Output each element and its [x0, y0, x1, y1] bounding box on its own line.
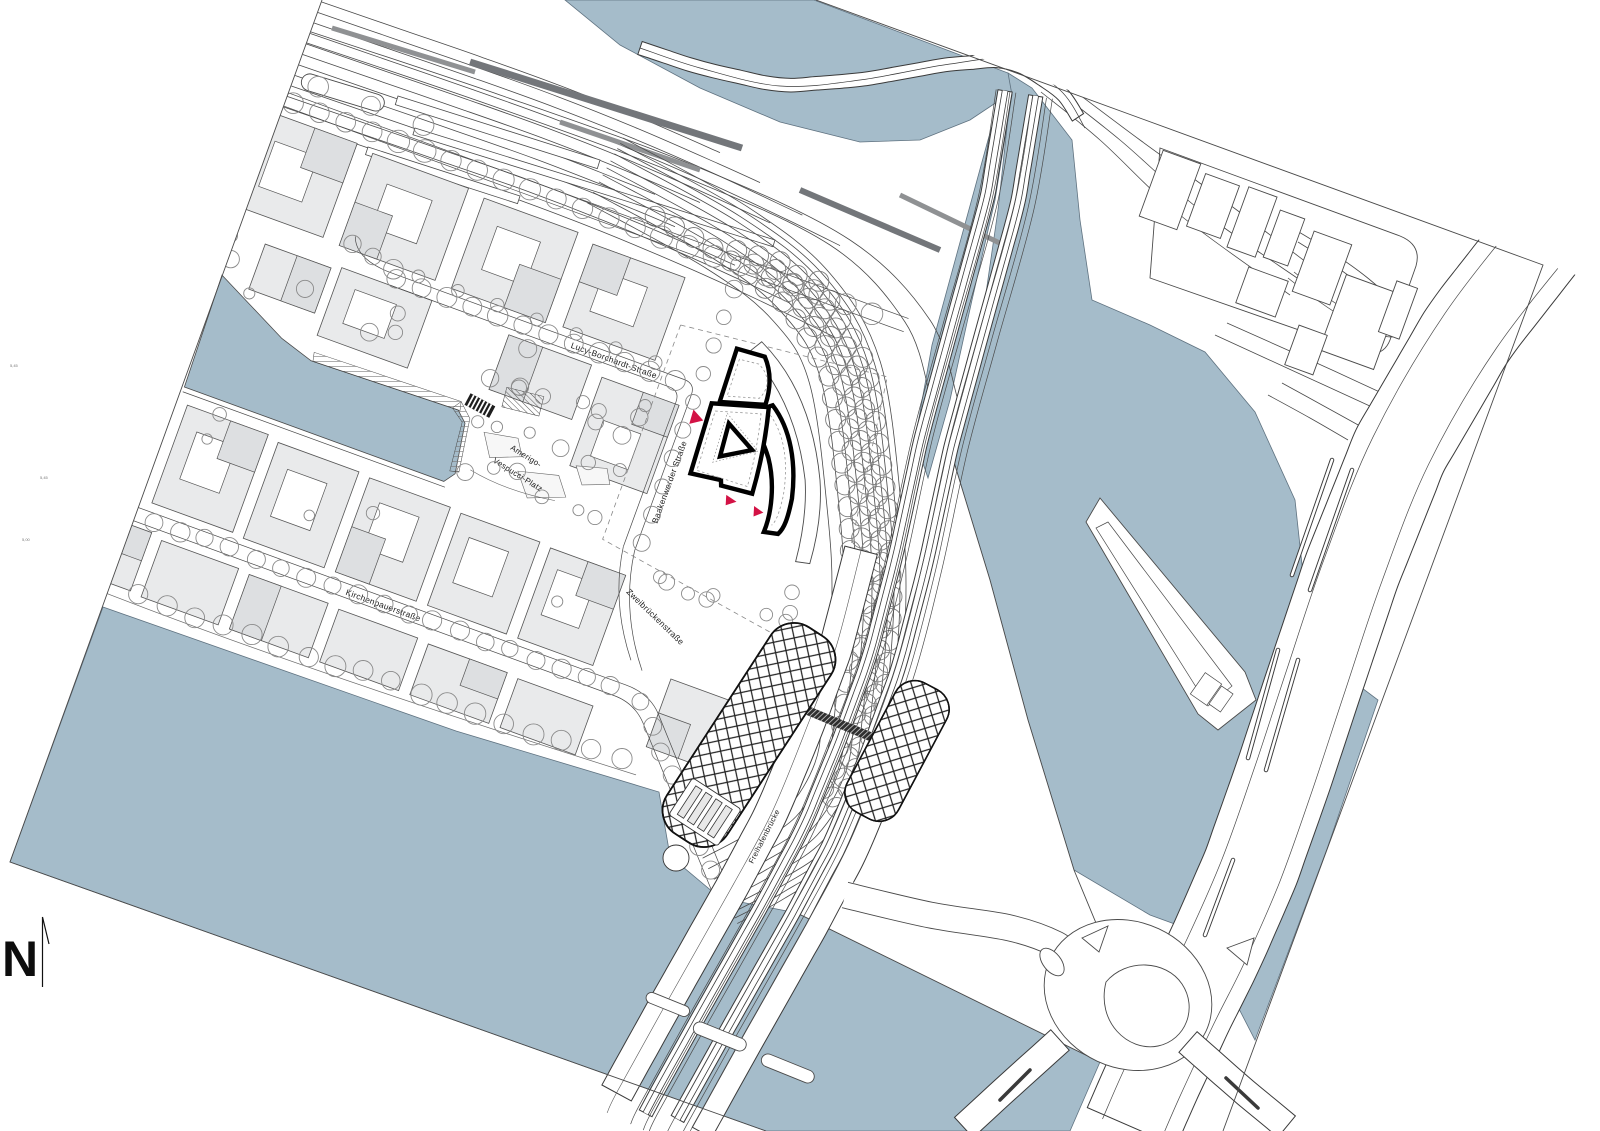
svg-text:5,45: 5,45 [10, 363, 19, 368]
svg-text:N: N [2, 931, 38, 987]
svg-text:5,45: 5,45 [40, 475, 49, 480]
svg-text:5,00: 5,00 [22, 537, 31, 542]
